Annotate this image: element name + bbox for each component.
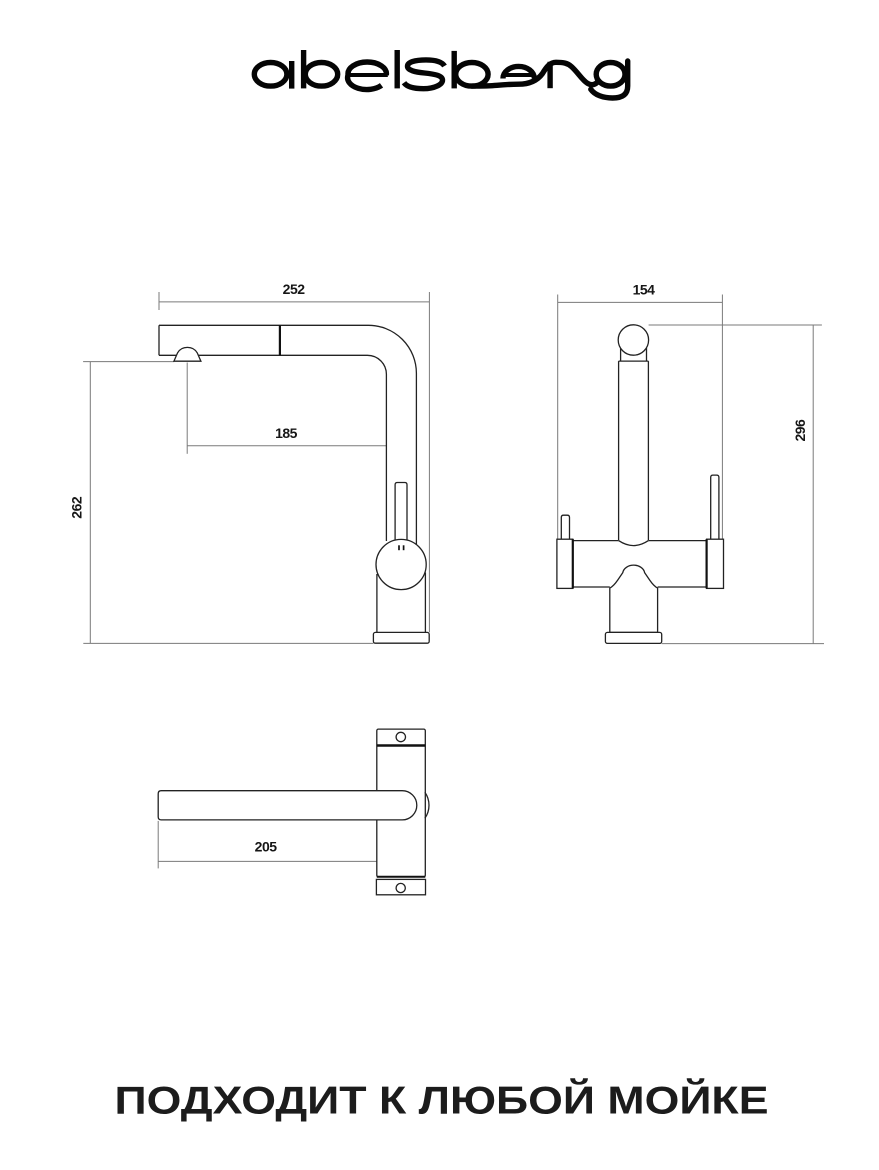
svg-text:185: 185 [275,425,298,441]
svg-text:252: 252 [283,281,306,297]
svg-text:205: 205 [255,839,278,855]
svg-text:296: 296 [792,419,808,442]
svg-text:154: 154 [633,282,656,298]
svg-text:262: 262 [69,496,85,519]
svg-text:ПОДХОДИТ К ЛЮБОЙ МОЙКЕ: ПОДХОДИТ К ЛЮБОЙ МОЙКЕ [115,1078,769,1123]
